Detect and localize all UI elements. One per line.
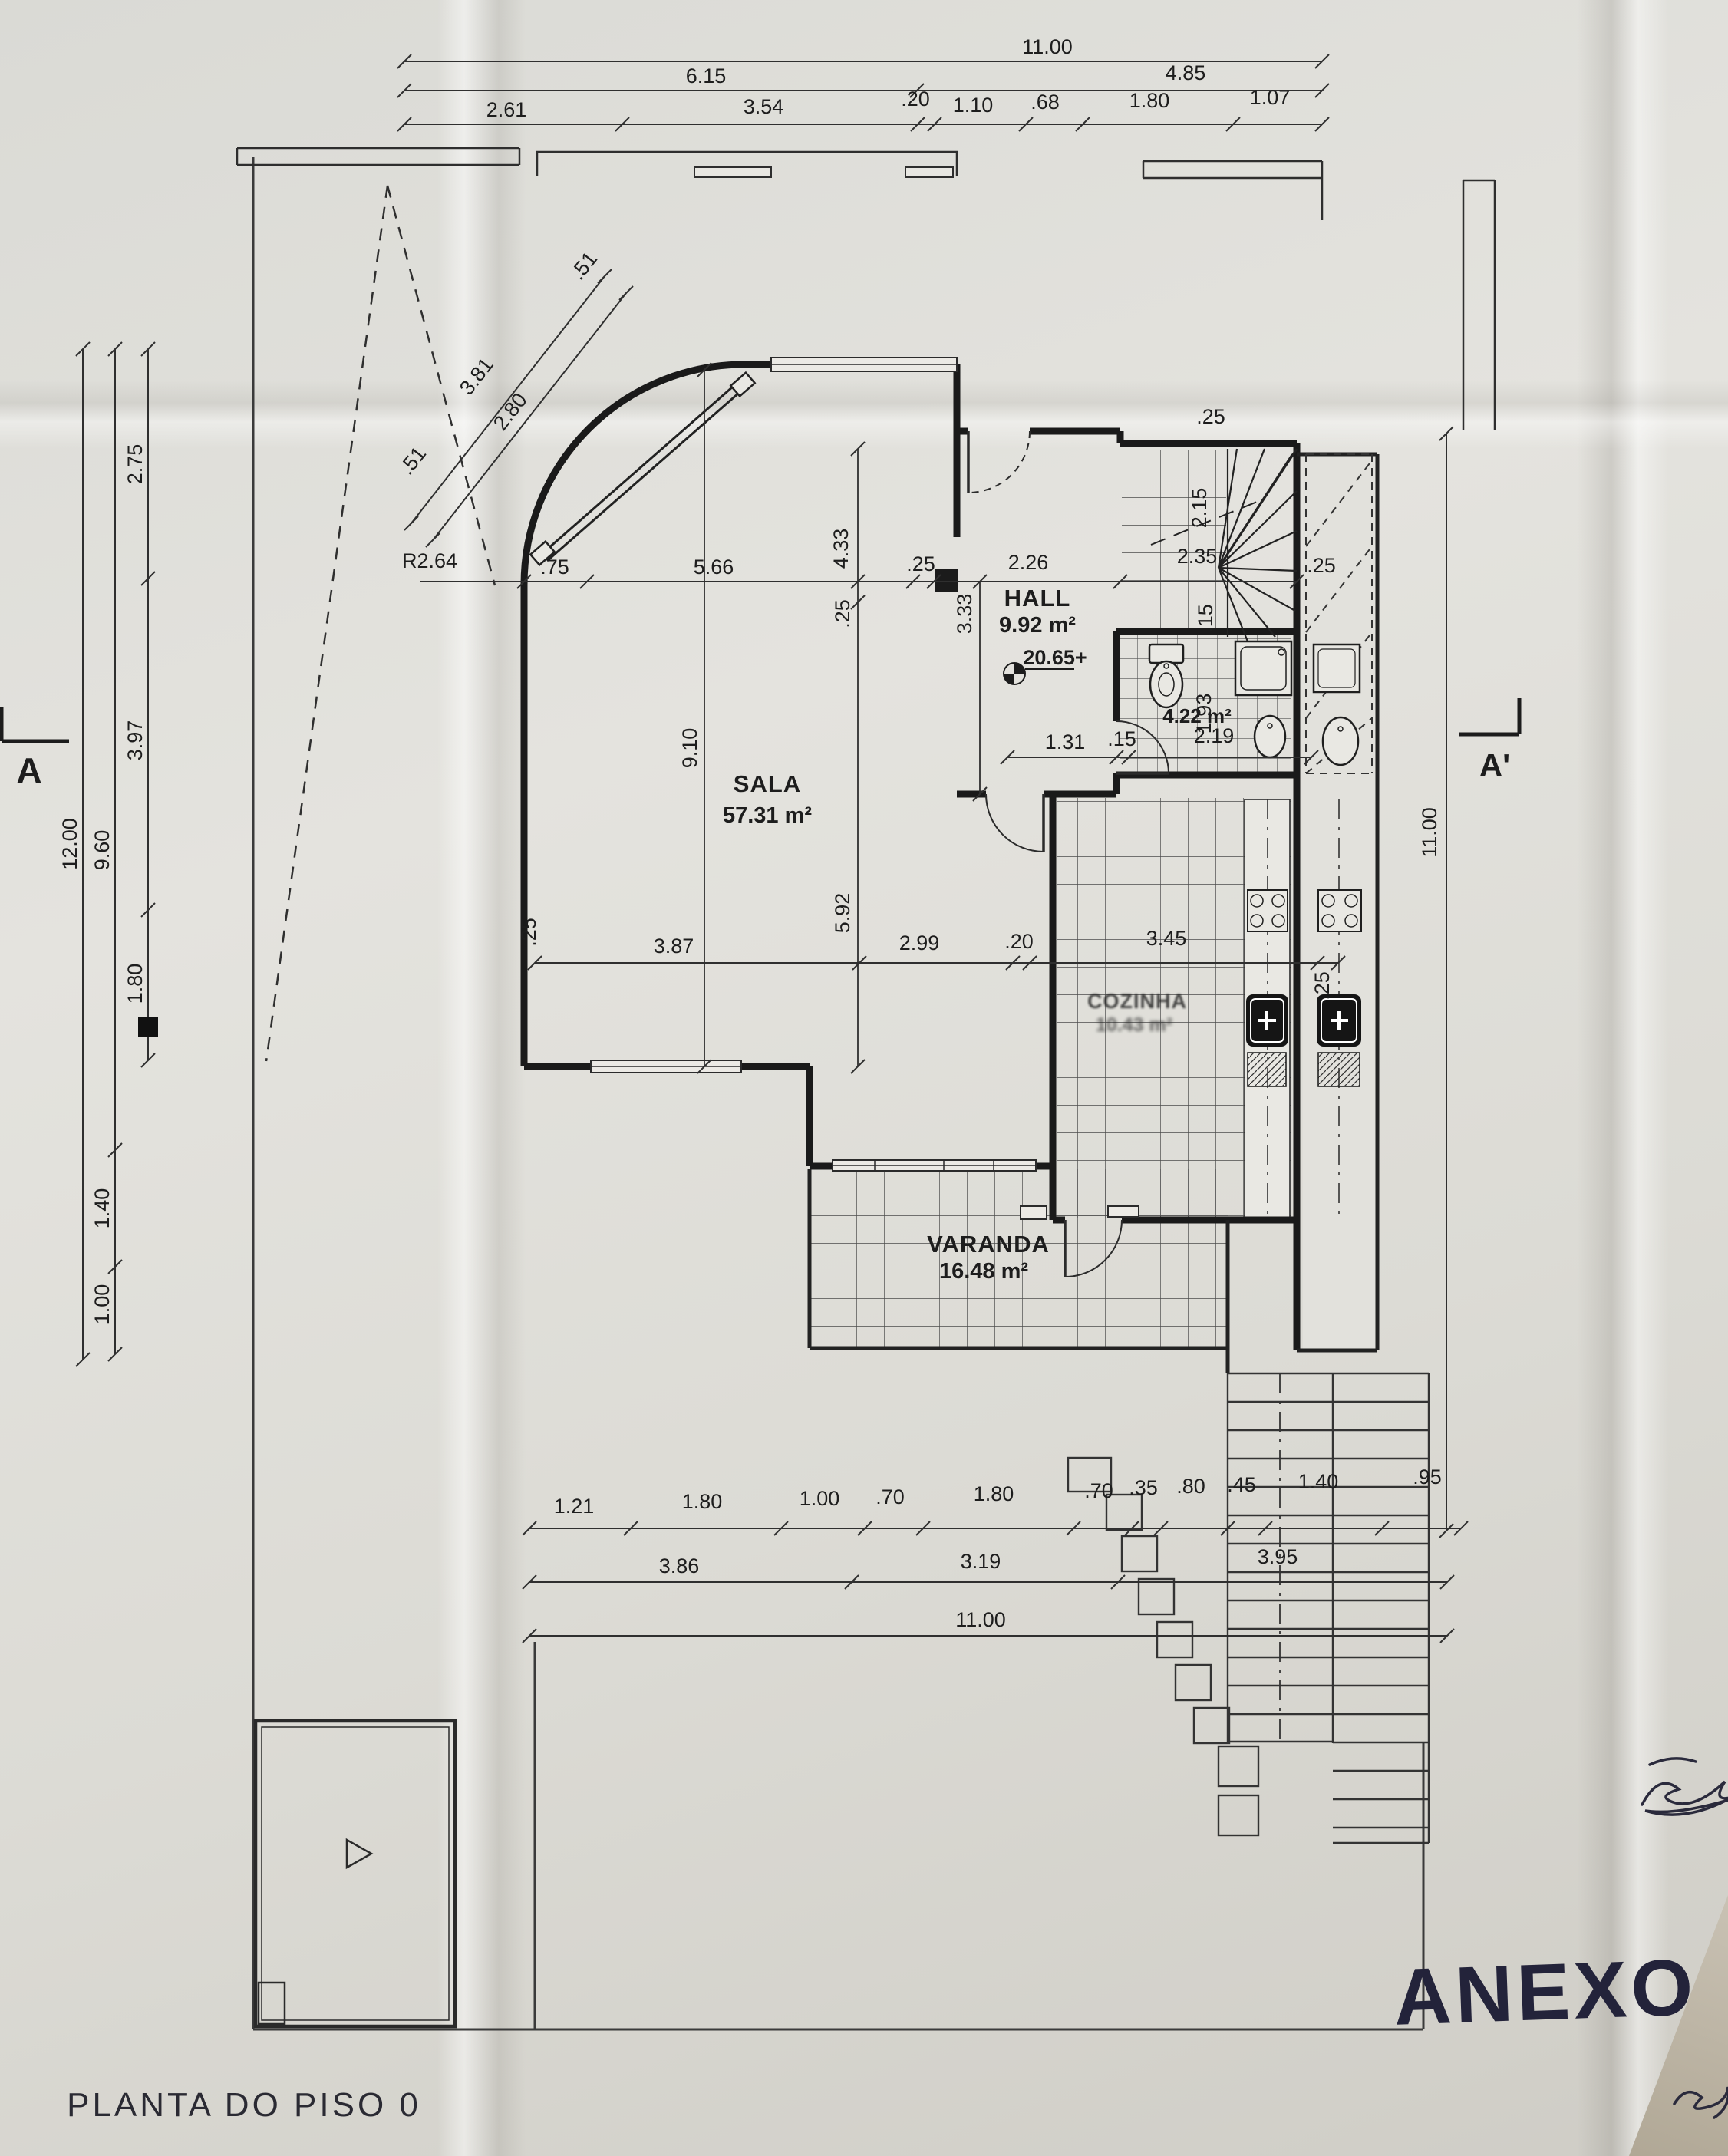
dim-label: 11.00 [1022,35,1073,58]
dim-label: 1.10 [953,94,994,117]
dim-label: .15 [1107,727,1136,750]
dim-label: 1.80 [124,964,147,1004]
pool-outline [256,1721,455,2026]
hall-landing-tiles [1122,450,1226,630]
dim-label: .70 [1084,1479,1113,1502]
dim-label: 3.54 [744,95,784,118]
handwritten-anexo: ANEXO [1392,1943,1698,2042]
laundry-basin [1323,717,1358,765]
dim-label: 1.31 [1045,730,1086,753]
dim-label: .45 [1227,1473,1256,1496]
section-marker-a-symbol [2,707,69,741]
dim-label: 2.75 [124,444,147,485]
varanda-tiles [810,1169,1228,1348]
floor-plan-drawing: 11.00 6.15 4.85 2.61 3.54 .20 1.10 .68 1… [0,0,1728,2156]
handwritten-scribbles [1642,1759,1728,2118]
dim-label: .25 [517,918,540,947]
dim-label: 3.81 [455,354,498,400]
dim-label: 4.33 [829,529,852,569]
dim-label: 1.07 [1250,86,1291,109]
room-label-sala: SALA [734,770,801,797]
storage-unit [1314,644,1360,692]
cooktop-1 [1248,890,1288,931]
dim-label: 1.00 [91,1284,114,1325]
dim-label: .20 [901,87,930,110]
dim-label: 3.97 [124,720,147,761]
dim-label: .25 [906,552,935,575]
threshold-1 [1021,1206,1047,1219]
drawing-title: PLANTA DO PISO 0 [67,2086,421,2124]
dim-label: 1.80 [682,1490,723,1513]
projection-dashed-lines [266,186,495,1061]
dim-label: .15 [1194,604,1217,633]
dim-label: 3.95 [1258,1545,1298,1568]
room-area-banho: 4.22 m² [1162,704,1232,727]
room-area-cozinha: 10.43 m² [1096,1014,1172,1036]
dim-label: 2.15 [1188,488,1211,529]
dim-label: 9.10 [678,728,701,769]
dim-label: 3.19 [961,1550,1001,1573]
dim-label: .75 [540,555,569,579]
dim-label: 6.15 [686,64,727,87]
dim-label: .70 [876,1485,905,1508]
dim-label: 1.21 [554,1495,595,1518]
triangle-marker [347,1840,371,1868]
radius-label: R2.64 [402,549,457,572]
dim-label: 12.00 [58,818,81,870]
dim-label: .95 [1413,1465,1442,1488]
dim-label: 1.00 [800,1487,840,1510]
dim-label: .51 [395,442,431,479]
washbasin [1255,716,1285,757]
dim-label: 2.99 [899,931,940,954]
dim-label: .51 [566,247,602,284]
dim-label: 11.00 [955,1608,1006,1631]
dim-label: 11.00 [1418,807,1441,858]
dim-label: .25 [1307,554,1336,577]
dim-label: 3.33 [953,594,976,635]
dim-label: 5.66 [694,555,734,579]
dim-label: 2.61 [486,98,527,121]
room-label-hall: HALL [1004,585,1071,612]
dim-label: 1.80 [974,1482,1014,1505]
section-markers [2,698,1519,741]
dim-label: 9.60 [91,830,114,871]
section-label-a-prime: A' [1479,747,1510,783]
dim-label: 3.45 [1146,927,1187,950]
windows [591,358,1139,1219]
dim-label: 3.87 [654,935,694,958]
front-door-swing [968,431,1030,493]
curved-wall-sliding-door [530,373,754,565]
dim-label: 2.26 [1008,551,1049,574]
dim-label: 1.40 [1298,1470,1339,1493]
room-area-hall: 9.92 m² [999,613,1076,638]
dim-label: 4.85 [1166,61,1206,84]
room-label-cozinha: COZINHA [1087,990,1187,1013]
dim-label: .25 [1311,971,1334,1001]
dim-label: 1.80 [1129,89,1170,112]
dim-label: 5.92 [831,893,854,934]
dim-label: 1.40 [91,1188,114,1229]
dim-label: 2.80 [489,389,532,435]
dim-label: .20 [1004,930,1034,953]
dim-label: 3.86 [659,1554,700,1577]
dim-label: .25 [1196,405,1225,428]
threshold-2 [1108,1206,1139,1217]
level-mark-label: 20.65+ [1023,646,1087,669]
dim-label: .68 [1031,91,1060,114]
room-label-varanda: VARANDA [927,1231,1050,1258]
dim-label: 2.35 [1177,545,1218,568]
dim-label: .80 [1176,1475,1205,1498]
left-chain-square-marker [138,1017,158,1037]
room-area-varanda: 16.48 m² [939,1259,1028,1284]
upper-floor-outline [237,148,1495,430]
kitchen-door-swing [986,794,1044,852]
section-label-a: A [16,750,41,790]
dim-label: .25 [831,599,854,628]
room-area-sala: 57.31 m² [723,803,812,828]
dim-label: .35 [1129,1476,1158,1499]
toilet-tank [1149,644,1183,663]
pool-step [259,1983,285,2024]
section-marker-a-prime-symbol [1459,698,1519,734]
